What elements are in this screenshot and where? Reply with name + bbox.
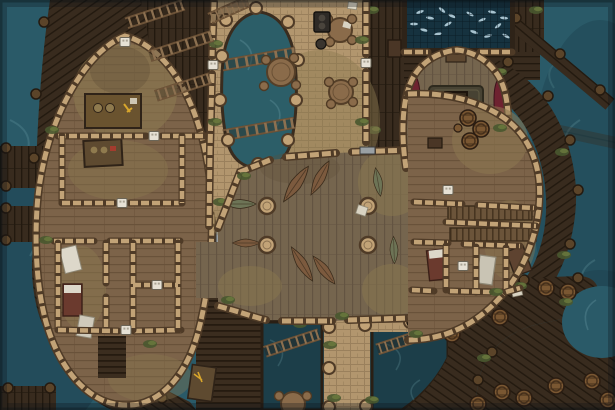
crate-table <box>83 139 122 167</box>
bow-table <box>85 94 141 128</box>
stern-crate <box>188 364 216 401</box>
battle-map[interactable] <box>0 0 615 410</box>
map-canvas[interactable] <box>0 0 615 410</box>
stern-stairs <box>98 336 126 378</box>
fish-pen <box>402 0 515 53</box>
